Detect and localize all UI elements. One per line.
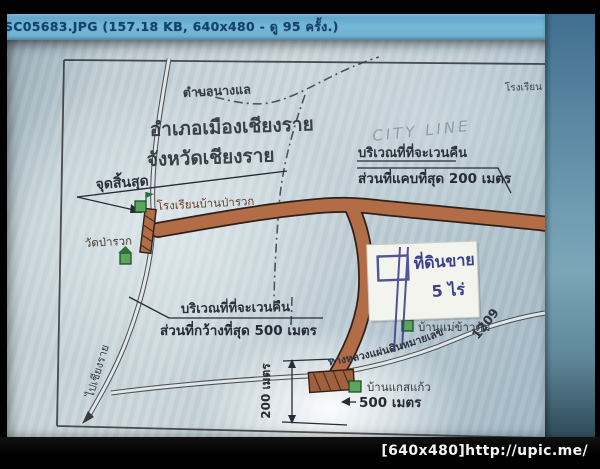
note-line2: 5 ไร่ xyxy=(431,280,466,301)
expro-top-line2: ส่วนที่แคบที่สุด 200 เมตร xyxy=(358,168,512,187)
village-kaew-icon xyxy=(349,381,361,392)
school-partial-label: โรงเรียน xyxy=(505,80,543,94)
region-province-label: จังหวัดเชียงราย xyxy=(146,145,274,171)
dimension-200m-label: 200 เมตร xyxy=(259,363,273,419)
to-chiang-rai-label: ไปเชียงราย xyxy=(83,343,112,399)
page-background-band xyxy=(545,0,595,437)
attachment-title-bar: SC05683.JPG (157.18 KB, 640x480 - ดู 95 … xyxy=(7,14,545,40)
arrowhead-500m xyxy=(341,397,350,406)
screen-photo: ตำบลนางแล อำเภอเมืองเชียงราย จังหวัดเชีย… xyxy=(0,0,600,469)
expro-mid-line2: ส่วนที่กว้างที่สุด 500 เมตร xyxy=(160,320,318,339)
region-subdistrict-label: ตำบลนางแล xyxy=(182,81,251,100)
map-drawing: ตำบลนางแล อำเภอเมืองเชียงราย จังหวัดเชีย… xyxy=(0,0,600,469)
screen-bezel-left xyxy=(0,0,7,469)
village-kaew-label: บ้านแกสแก้ว xyxy=(367,380,431,394)
city-line-watermark: CITY LINE xyxy=(372,117,472,145)
temple-icon xyxy=(118,246,132,264)
dimension-500m-label: 500 เมตร xyxy=(359,395,422,411)
region-district-label: อำเภอเมืองเชียงราย xyxy=(149,113,314,141)
attachment-title-text: SC05683.JPG (157.18 KB, 640x480 - ดู 95 … xyxy=(7,17,339,37)
screen-bezel-right xyxy=(595,0,600,469)
screen-bezel-top xyxy=(0,0,600,14)
end-point-label: จุดสิ้นสุด xyxy=(95,169,149,193)
temple-label: วัดป่ารวก xyxy=(84,234,132,250)
main-road xyxy=(158,205,548,373)
expro-top-line1: บริเวณที่ที่จะเวนคืน xyxy=(358,143,467,161)
upic-watermark: [640x480]http://upic.me/ xyxy=(381,443,588,459)
bridge xyxy=(308,369,354,392)
expro-mid-line1: บริเวณที่ที่จะเวนคืน xyxy=(181,297,290,317)
